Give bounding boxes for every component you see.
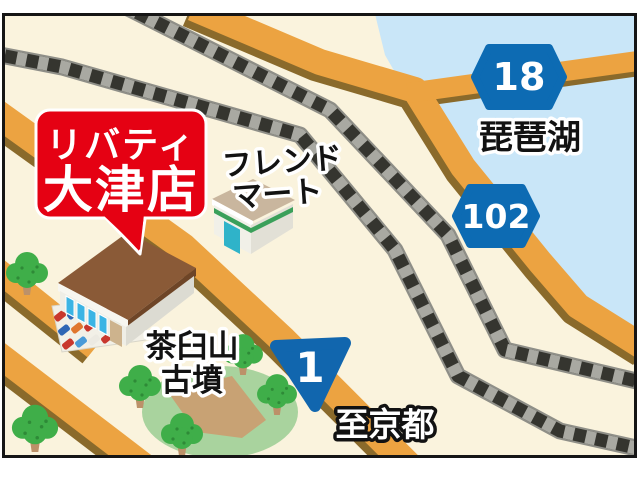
store-callout-line2: 大津店 <box>43 161 199 219</box>
map-screenshot: 18 102 1 琵琶湖 フレンド マート 茶臼山 古墳 至京都 リバティ 大津… <box>0 0 640 480</box>
store-callout-line1: リバティ <box>46 125 196 166</box>
to-kyoto-label: 至京都 <box>336 405 435 444</box>
kofun-label-line1: 茶臼山 <box>146 329 239 365</box>
lake-label: 琵琶湖 <box>479 118 581 158</box>
route-1-number: 1 <box>295 343 324 392</box>
friend-mart-label-line2: マート <box>231 174 323 215</box>
route-102-number: 102 <box>462 197 531 236</box>
route-102-badge: 102 <box>456 188 536 244</box>
route-18-badge: 18 <box>475 48 563 106</box>
route-18-number: 18 <box>493 55 546 99</box>
kofun-label-line2: 古墳 <box>161 363 223 399</box>
map-canvas: 18 102 1 琵琶湖 フレンド マート 茶臼山 古墳 至京都 リバティ 大津… <box>0 0 640 480</box>
